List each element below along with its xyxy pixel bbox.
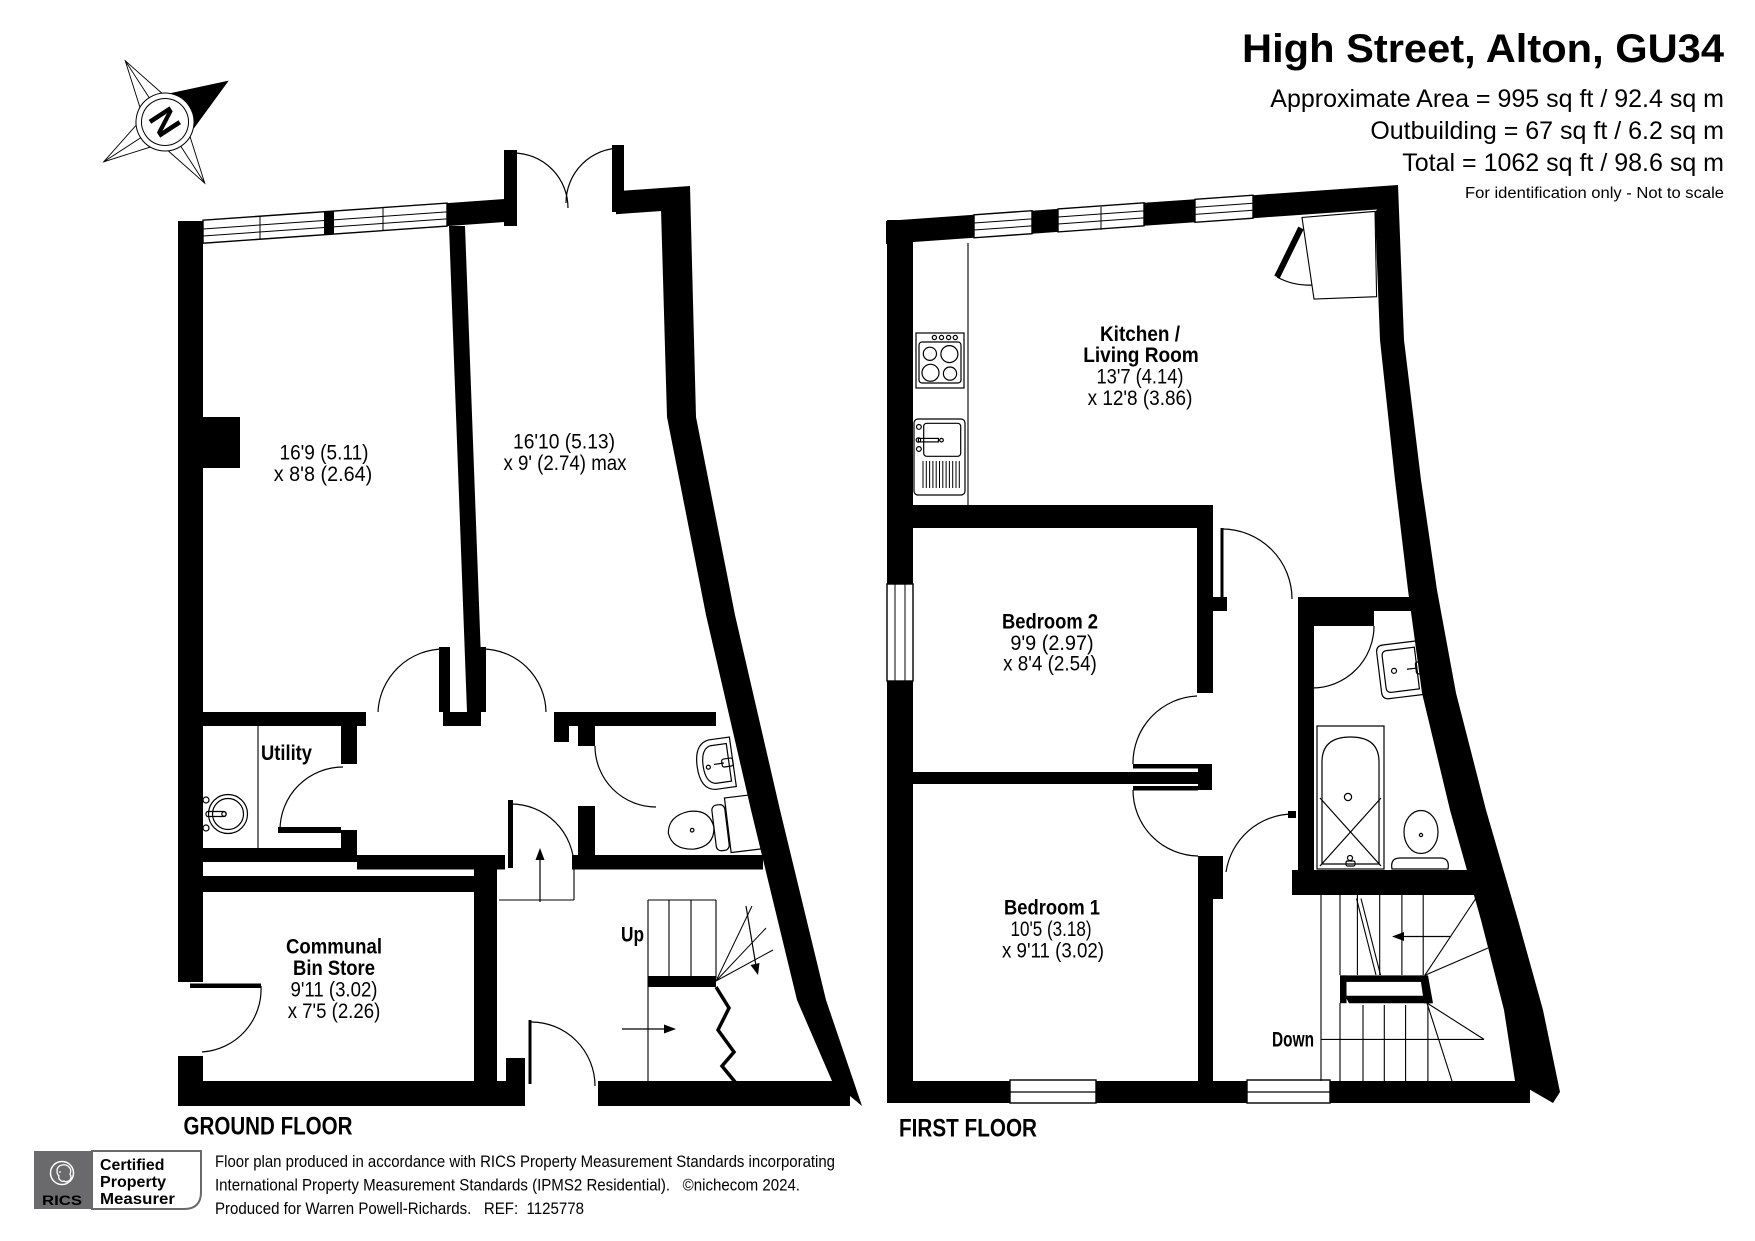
svg-text:Approximate Area = 995 sq ft /: Approximate Area = 995 sq ft / 92.4 sq m xyxy=(1270,85,1724,113)
svg-text:13'7 (4.14): 13'7 (4.14) xyxy=(1097,366,1184,389)
svg-text:For identification only - Not: For identification only - Not to scale xyxy=(1465,185,1724,202)
svg-text:16'9 (5.11): 16'9 (5.11) xyxy=(280,442,369,465)
svg-text:FIRST FLOOR: FIRST FLOOR xyxy=(899,1115,1037,1143)
svg-text:Communal: Communal xyxy=(286,936,382,959)
svg-text:x 9' (2.74) max: x 9' (2.74) max xyxy=(504,452,627,475)
svg-text:RICS: RICS xyxy=(42,1193,82,1208)
svg-text:Outbuilding = 67 sq ft / 6.2 s: Outbuilding = 67 sq ft / 6.2 sq m xyxy=(1370,117,1724,145)
svg-text:Utility: Utility xyxy=(261,742,312,765)
svg-text:9'11 (3.02): 9'11 (3.02) xyxy=(291,979,378,1002)
svg-text:Measurer: Measurer xyxy=(100,1191,175,1208)
svg-text:x 7'5 (2.26): x 7'5 (2.26) xyxy=(288,1000,381,1023)
svg-text:Down: Down xyxy=(1272,1029,1314,1052)
svg-text:Living Room: Living Room xyxy=(1083,344,1199,367)
svg-text:Total = 1062 sq ft / 98.6 sq m: Total = 1062 sq ft / 98.6 sq m xyxy=(1402,149,1724,177)
svg-text:Floor plan produced in accorda: Floor plan produced in accordance with R… xyxy=(215,1152,835,1171)
svg-text:x 12'8 (3.86): x 12'8 (3.86) xyxy=(1088,387,1193,410)
svg-text:Bedroom 1: Bedroom 1 xyxy=(1004,897,1100,920)
svg-text:High Street, Alton, GU34: High Street, Alton, GU34 xyxy=(1242,27,1725,71)
svg-text:Up: Up xyxy=(621,924,644,947)
svg-text:Kitchen /: Kitchen / xyxy=(1100,323,1180,346)
svg-text:International Property Measure: International Property Measurement Stand… xyxy=(215,1176,800,1195)
svg-text:Bin Store: Bin Store xyxy=(293,957,375,980)
svg-text:16'10 (5.13): 16'10 (5.13) xyxy=(513,431,615,454)
svg-text:GROUND FLOOR: GROUND FLOOR xyxy=(184,1113,353,1141)
svg-text:Property: Property xyxy=(100,1174,166,1191)
svg-text:x 9'11 (3.02): x 9'11 (3.02) xyxy=(1002,940,1104,963)
svg-text:Produced for Warren Powell-Ric: Produced for Warren Powell-Richards. REF… xyxy=(215,1199,584,1218)
svg-text:Certified: Certified xyxy=(100,1157,165,1174)
svg-text:x 8'4 (2.54): x 8'4 (2.54) xyxy=(1003,653,1097,676)
svg-text:10'5 (3.18): 10'5 (3.18) xyxy=(1011,918,1092,941)
svg-text:Bedroom 2: Bedroom 2 xyxy=(1002,610,1098,633)
svg-text:x 8'8 (2.64): x 8'8 (2.64) xyxy=(274,463,373,486)
